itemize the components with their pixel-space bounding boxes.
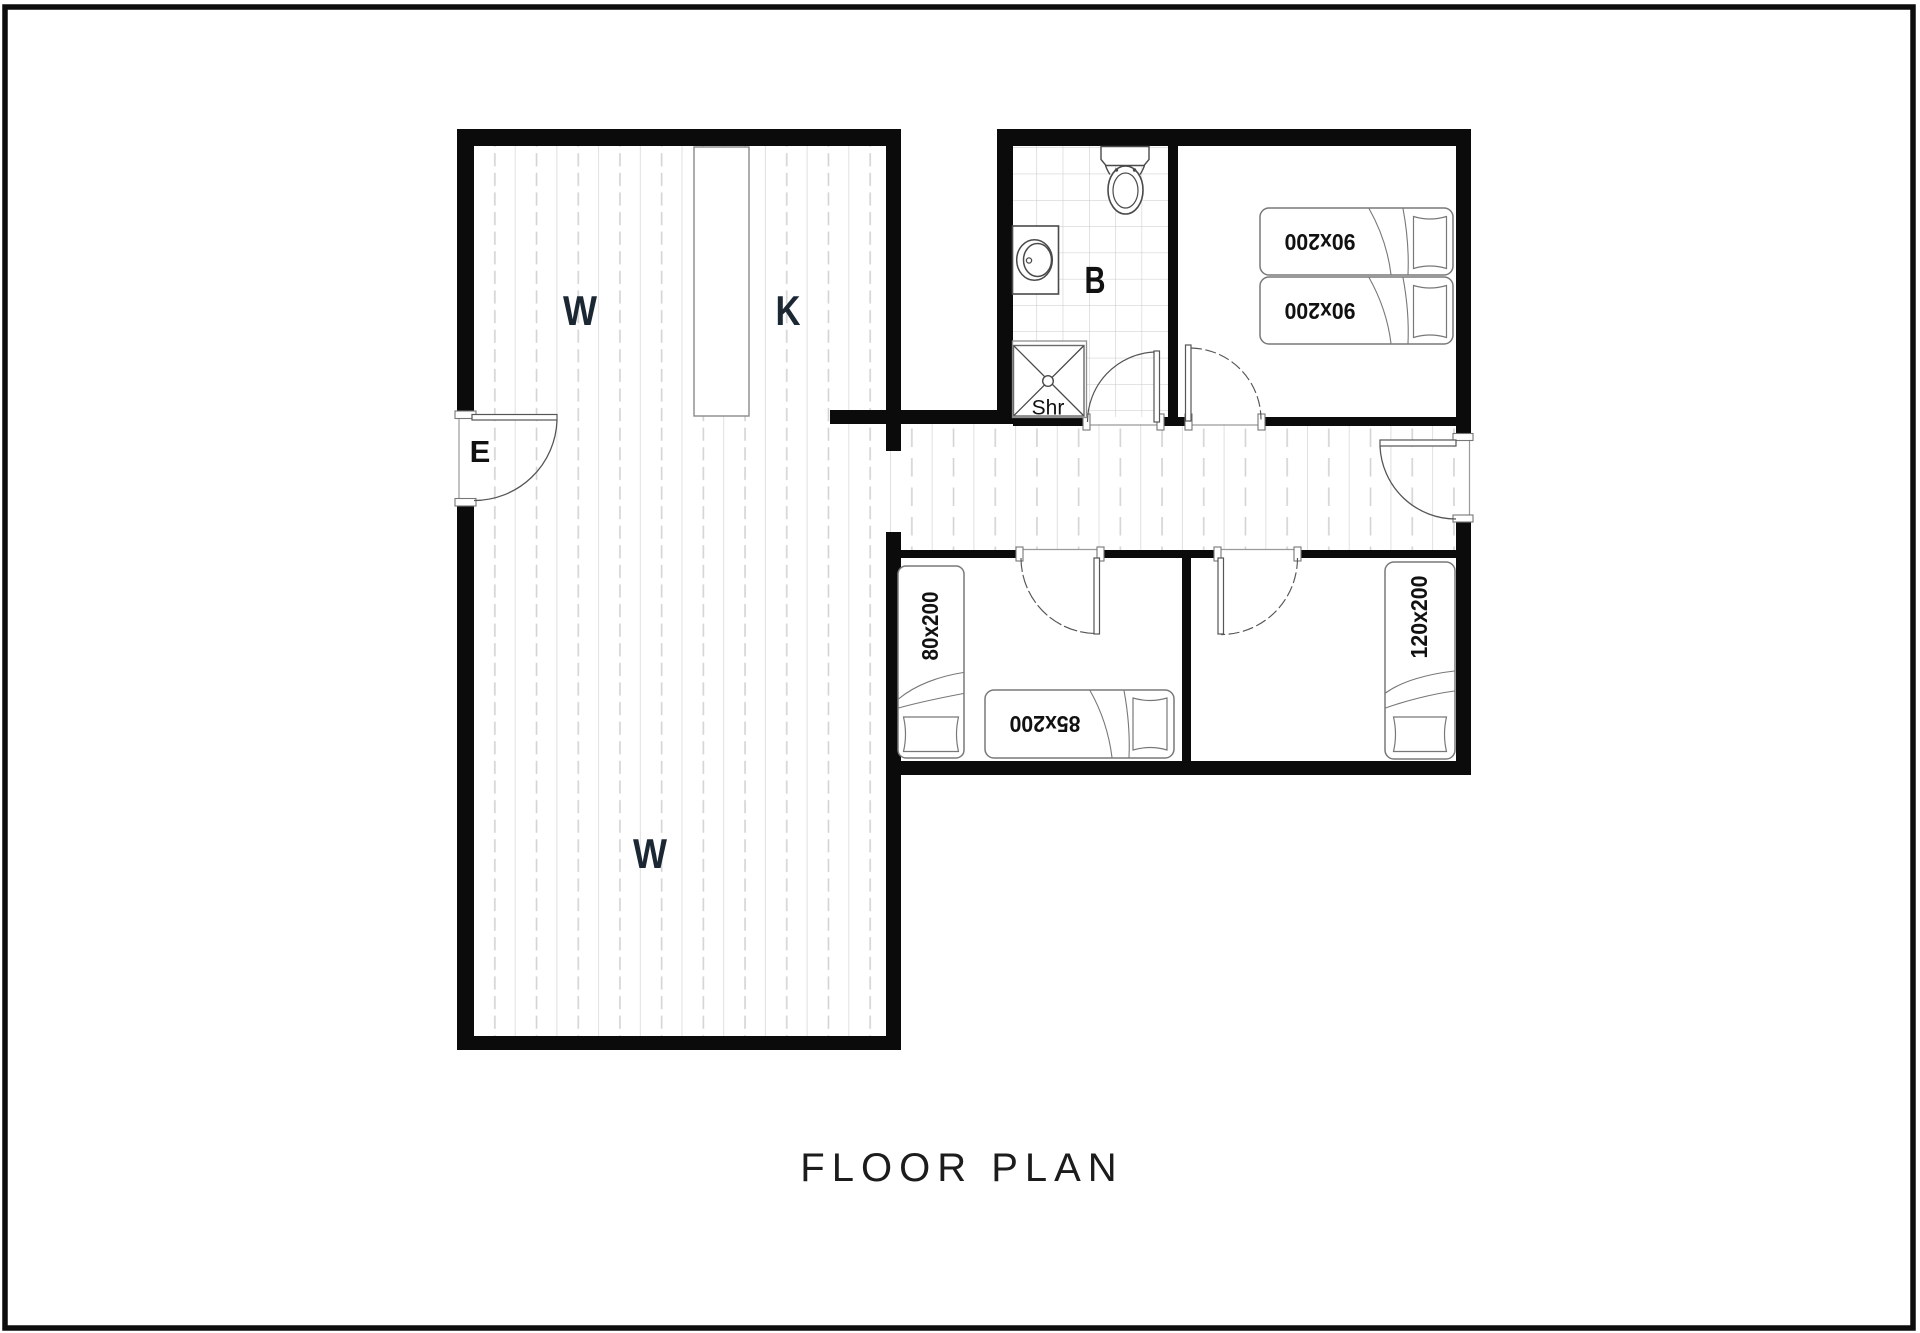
svg-text:W: W — [633, 830, 667, 877]
svg-text:Shr: Shr — [1032, 397, 1065, 420]
svg-text:W: W — [563, 287, 597, 334]
svg-text:80x200: 80x200 — [917, 592, 943, 661]
svg-text:B: B — [1085, 260, 1106, 302]
svg-text:90x200: 90x200 — [1285, 298, 1356, 324]
svg-text:K: K — [776, 287, 801, 334]
svg-text:90x200: 90x200 — [1285, 229, 1356, 255]
svg-text:FLOOR PLAN: FLOOR PLAN — [800, 1146, 1123, 1190]
svg-text:120x200: 120x200 — [1406, 576, 1432, 659]
svg-text:E: E — [470, 434, 491, 469]
svg-text:85x200: 85x200 — [1010, 711, 1081, 737]
